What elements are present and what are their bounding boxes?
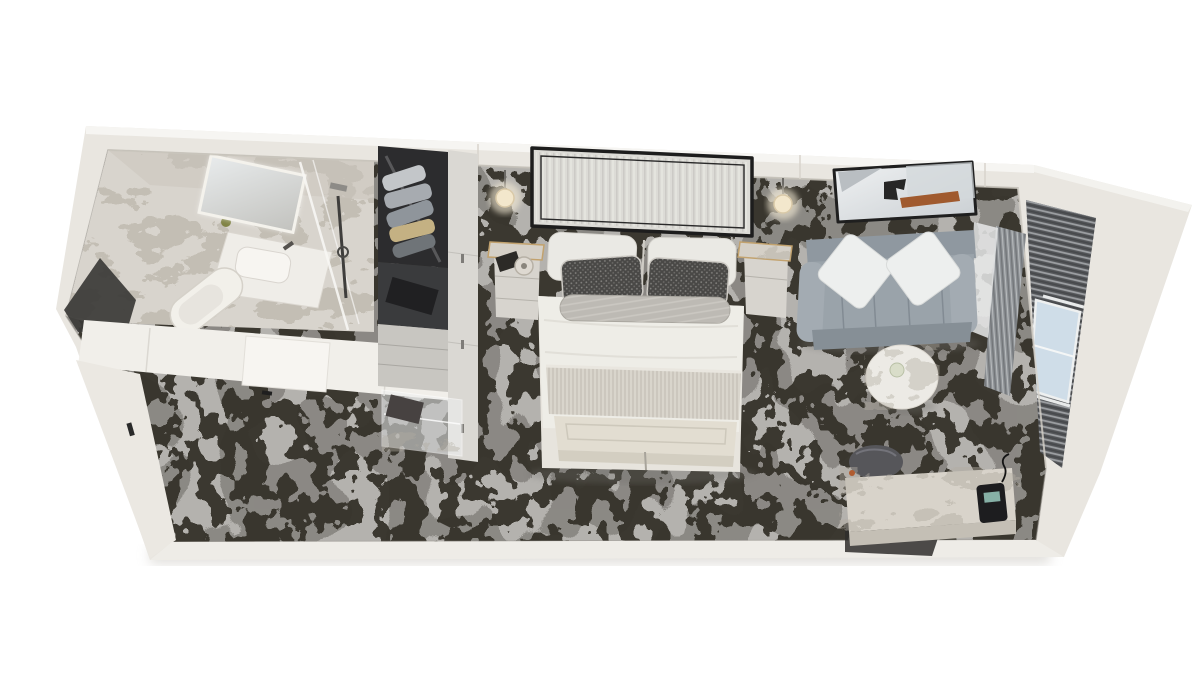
sofa	[796, 229, 980, 353]
nightstand-left	[488, 242, 544, 320]
bathroom-door	[242, 336, 330, 392]
sconce-light	[496, 189, 514, 207]
table-marble-veins	[868, 347, 936, 407]
phone-screen	[984, 491, 1001, 503]
cabinet-handle	[461, 254, 464, 263]
side-table	[866, 345, 938, 414]
bathroom	[60, 145, 380, 340]
drawers	[378, 324, 448, 392]
bed	[527, 232, 757, 484]
bolster-cushion	[560, 295, 730, 324]
desk-accessory	[849, 470, 855, 476]
bed-runner	[546, 366, 741, 420]
stateroom-floorplan-render	[0, 0, 1200, 675]
headboard	[532, 148, 752, 236]
sconce-light	[774, 195, 792, 213]
wardrobe	[378, 146, 478, 462]
cabinet-handle	[461, 340, 464, 349]
wall-art	[834, 162, 976, 222]
glassware	[386, 424, 460, 450]
bed-base-split	[645, 452, 646, 470]
glass-shelves	[382, 390, 462, 456]
nightstand-body	[744, 252, 788, 318]
tray-item	[521, 263, 527, 269]
stateroom-render	[0, 0, 1200, 675]
nightstand-right	[738, 242, 792, 318]
marble-texture	[742, 246, 788, 258]
table-flowers	[890, 363, 904, 377]
